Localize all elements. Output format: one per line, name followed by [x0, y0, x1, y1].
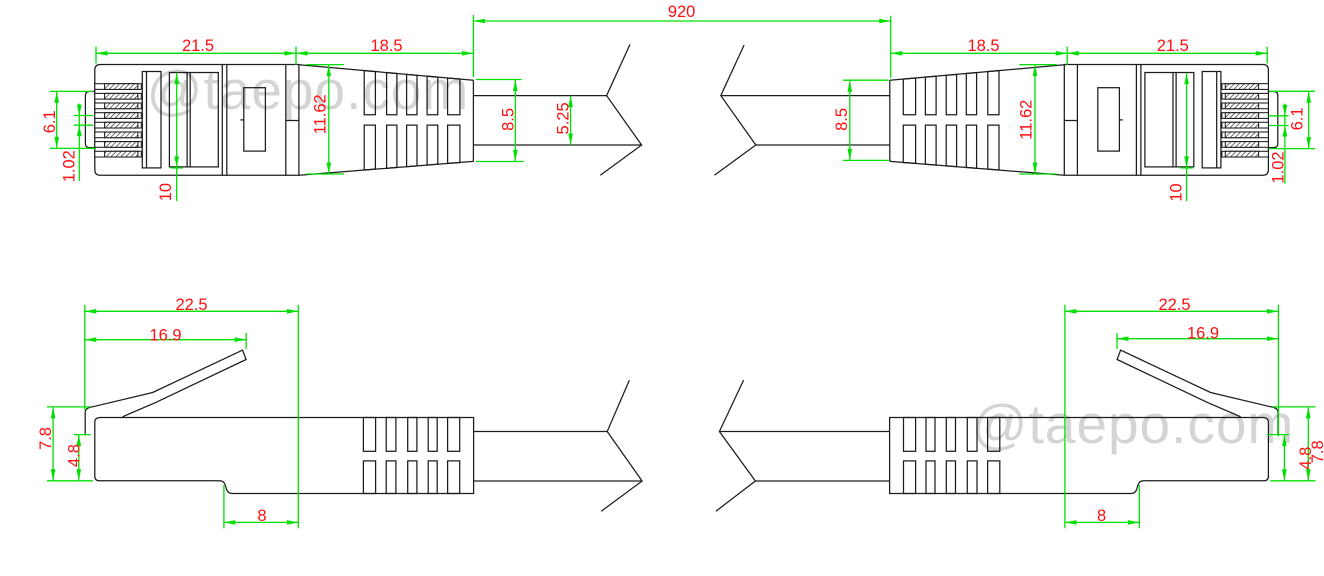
svg-text:7.8: 7.8: [37, 427, 55, 450]
svg-text:21.5: 21.5: [1157, 37, 1189, 55]
svg-text:22.5: 22.5: [175, 296, 207, 314]
svg-text:4.8: 4.8: [1297, 447, 1315, 470]
svg-text:5.25: 5.25: [555, 102, 573, 134]
svg-text:10: 10: [1168, 183, 1186, 201]
svg-text:6.1: 6.1: [41, 110, 59, 133]
svg-text:@taepo.com: @taepo.com: [972, 393, 1295, 455]
svg-text:11.62: 11.62: [1017, 100, 1035, 140]
svg-text:@taepo.com: @taepo.com: [147, 59, 470, 121]
svg-text:8: 8: [257, 507, 266, 525]
svg-text:8: 8: [1097, 507, 1106, 525]
svg-text:920: 920: [668, 3, 696, 21]
svg-text:10: 10: [157, 183, 175, 201]
svg-text:21.5: 21.5: [182, 37, 214, 55]
svg-text:16.9: 16.9: [1187, 325, 1219, 343]
svg-text:16.9: 16.9: [149, 327, 181, 345]
svg-text:18.5: 18.5: [967, 37, 999, 55]
svg-text:1.02: 1.02: [1270, 151, 1288, 183]
svg-text:1.02: 1.02: [61, 150, 79, 182]
svg-text:4.8: 4.8: [66, 444, 84, 467]
svg-text:6.1: 6.1: [1289, 107, 1307, 130]
svg-text:8.5: 8.5: [833, 108, 851, 131]
svg-text:11.62: 11.62: [312, 94, 330, 134]
svg-text:8.5: 8.5: [500, 108, 518, 131]
svg-text:22.5: 22.5: [1158, 296, 1190, 314]
svg-text:18.5: 18.5: [370, 37, 402, 55]
